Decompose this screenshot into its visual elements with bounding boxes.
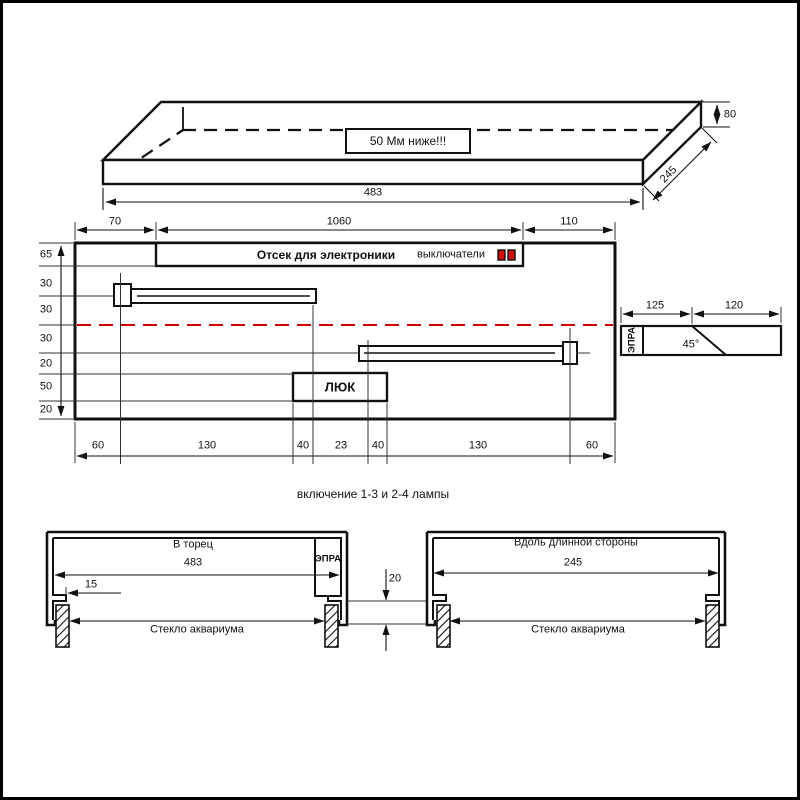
section-end-title: В торец	[173, 540, 213, 551]
section-gap	[347, 569, 427, 651]
plan-bdim-130a: 130	[198, 441, 216, 452]
iso-view	[103, 102, 730, 210]
plan-dim-65: 65	[40, 250, 52, 261]
plan-dim-30a: 30	[40, 279, 52, 290]
lamp-switching-caption: включение 1-3 и 2-4 лампы	[297, 488, 449, 500]
ballast-box	[315, 538, 341, 596]
plan-bdim-23: 23	[335, 441, 347, 452]
section-long-dim-label: 245	[564, 558, 582, 569]
iso-dim-width-label: 483	[364, 188, 382, 199]
ballast-label: ЭПРА	[627, 327, 637, 353]
plan-bdim-60a: 60	[92, 441, 104, 452]
ballast-angle-label: 45°	[683, 340, 700, 351]
section-long-glass-label: Стекло аквариума	[527, 625, 629, 636]
switch-icon	[508, 250, 515, 260]
iso-front-face	[103, 160, 643, 184]
iso-dim-height-label: 80	[724, 110, 736, 121]
ballast-dim-125: 125	[646, 301, 664, 312]
glass-pane	[325, 605, 338, 647]
lip-dim-label: 15	[85, 580, 97, 591]
electronics-label: Отсек для электроники	[257, 249, 395, 261]
plan-dim-30b: 30	[40, 305, 52, 316]
glass-pane	[706, 605, 719, 647]
plan-dim-20a: 20	[40, 359, 52, 370]
switch-icon	[498, 250, 505, 260]
glass-pane	[437, 605, 450, 647]
hatch-label: ЛЮК	[325, 381, 355, 394]
plan-dim-70: 70	[109, 217, 121, 228]
drawing-linework	[3, 3, 800, 800]
plan-dim-30c: 30	[40, 334, 52, 345]
lamp-2	[359, 342, 577, 364]
plan-bdim-60b: 60	[586, 441, 598, 452]
section-end-ballast-label: ЭПРА	[315, 554, 341, 564]
section-long-title: Вдоль длинной стороны	[514, 538, 638, 549]
iso-note-label: 50 Мм ниже!!!	[370, 135, 446, 147]
section-end-dim-label: 483	[184, 558, 202, 569]
plan-bdim-40b: 40	[372, 441, 384, 452]
gap-dim-label: 20	[389, 574, 401, 585]
ballast-side-view	[621, 307, 781, 355]
section-end-glass-label: Стекло аквариума	[146, 625, 248, 636]
glass-pane	[56, 605, 69, 647]
plan-dim-1060: 1060	[327, 217, 351, 228]
plan-dim-50: 50	[40, 382, 52, 393]
plan-dim-110: 110	[560, 217, 578, 228]
switches-label: выключатели	[417, 250, 485, 261]
ballast-body	[621, 326, 781, 355]
technical-drawing-canvas: 50 Мм ниже!!! 483 245 80 70 1060 110 65 …	[0, 0, 800, 800]
ballast-dim-120: 120	[725, 301, 743, 312]
plan-bdim-40a: 40	[297, 441, 309, 452]
plan-dim-20b: 20	[40, 405, 52, 416]
plan-bdim-130b: 130	[469, 441, 487, 452]
